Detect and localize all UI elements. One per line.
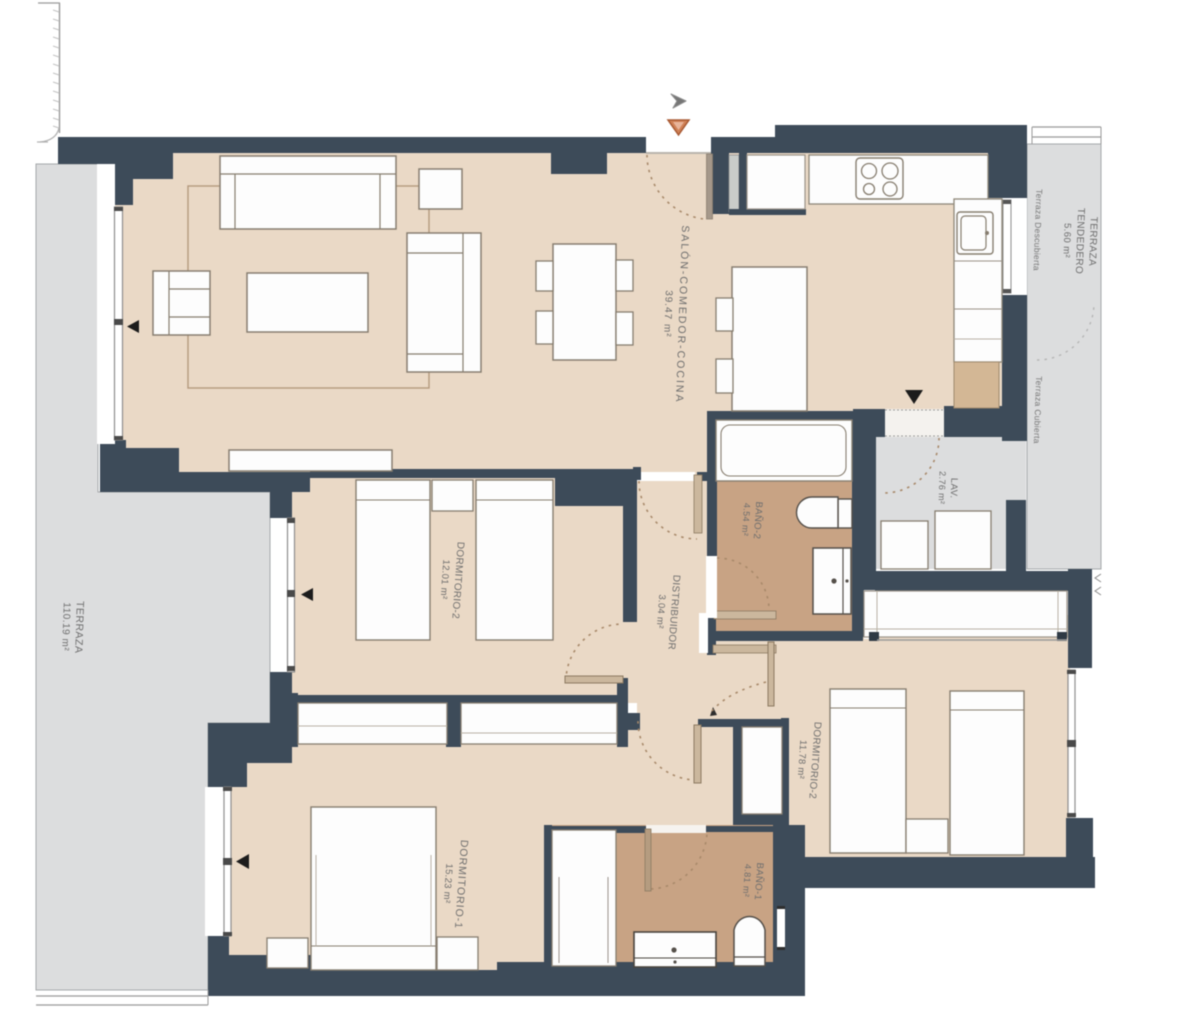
svg-text:TERRAZA: TERRAZA [1086, 217, 1099, 267]
svg-text:2.76 m²: 2.76 m² [936, 471, 947, 505]
svg-text:39.47 m²: 39.47 m² [661, 290, 674, 338]
svg-text:LAV.: LAV. [948, 478, 960, 499]
svg-text:TERRAZA: TERRAZA [72, 601, 86, 654]
svg-text:5.60 m²: 5.60 m² [1060, 223, 1072, 258]
svg-text:110.19 m²: 110.19 m² [59, 602, 72, 651]
svg-text:TENDEDERO: TENDEDERO [1073, 208, 1086, 275]
